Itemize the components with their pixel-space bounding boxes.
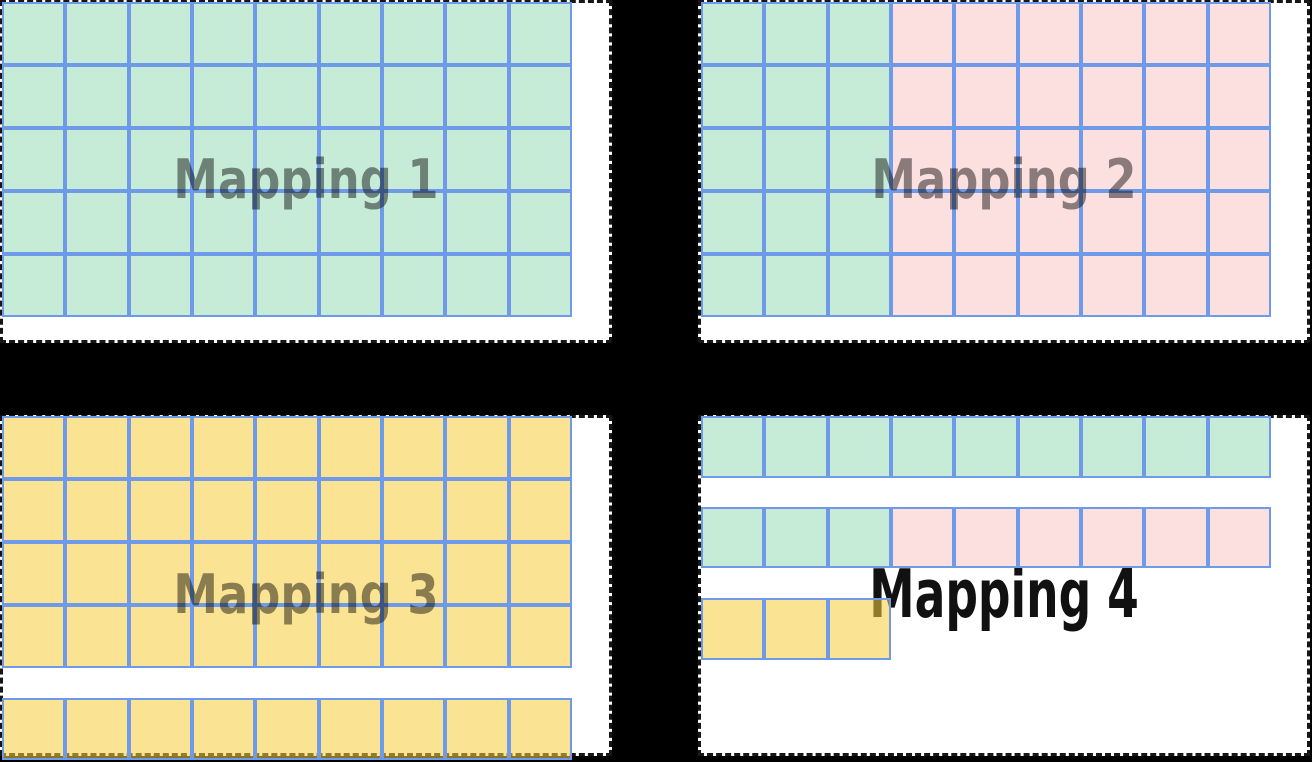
yellow-cell bbox=[2, 416, 65, 479]
mapping-4-row-1 bbox=[701, 416, 1271, 478]
green-cell bbox=[445, 65, 508, 128]
green-cell bbox=[192, 128, 255, 191]
green-cell bbox=[65, 128, 128, 191]
green-cell bbox=[2, 128, 65, 191]
yellow-cell bbox=[319, 542, 382, 605]
green-cell bbox=[509, 65, 572, 128]
yellow-cell bbox=[319, 698, 382, 760]
yellow-cell bbox=[445, 479, 508, 542]
green-cell bbox=[129, 65, 192, 128]
yellow-cell bbox=[319, 416, 382, 479]
yellow-cell bbox=[382, 542, 445, 605]
pink-cell bbox=[1081, 2, 1144, 65]
green-cell bbox=[701, 2, 764, 65]
yellow-cell bbox=[319, 479, 382, 542]
green-cell bbox=[382, 191, 445, 254]
pink-cell bbox=[954, 191, 1017, 254]
green-cell bbox=[1018, 416, 1081, 478]
mapping-1-grid bbox=[2, 2, 572, 317]
yellow-cell bbox=[445, 698, 508, 760]
green-cell bbox=[701, 507, 764, 568]
pink-cell bbox=[1208, 2, 1271, 65]
pink-cell bbox=[1144, 507, 1207, 568]
mapping-3-panel: Mapping 3 bbox=[0, 415, 612, 756]
green-cell bbox=[192, 2, 255, 65]
pink-cell bbox=[1018, 254, 1081, 317]
green-cell bbox=[382, 254, 445, 317]
yellow-cell bbox=[129, 542, 192, 605]
mapping-1-panel: Mapping 1 bbox=[0, 0, 612, 343]
yellow-cell bbox=[255, 542, 318, 605]
yellow-cell bbox=[129, 416, 192, 479]
yellow-cell bbox=[828, 598, 891, 660]
green-cell bbox=[701, 254, 764, 317]
yellow-cell bbox=[65, 479, 128, 542]
pink-cell bbox=[954, 254, 1017, 317]
green-cell bbox=[445, 2, 508, 65]
mapping-3-grid-lower-row bbox=[2, 698, 572, 760]
yellow-cell bbox=[382, 605, 445, 668]
green-cell bbox=[319, 191, 382, 254]
green-cell bbox=[445, 191, 508, 254]
green-cell bbox=[319, 128, 382, 191]
yellow-cell bbox=[2, 698, 65, 760]
pink-cell bbox=[1144, 254, 1207, 317]
green-cell bbox=[509, 191, 572, 254]
pink-cell bbox=[1018, 191, 1081, 254]
green-cell bbox=[192, 191, 255, 254]
yellow-cell bbox=[509, 479, 572, 542]
green-cell bbox=[255, 65, 318, 128]
yellow-cell bbox=[65, 698, 128, 760]
green-cell bbox=[1081, 416, 1144, 478]
green-cell bbox=[828, 191, 891, 254]
pink-cell bbox=[1018, 507, 1081, 568]
pink-cell bbox=[1144, 65, 1207, 128]
green-cell bbox=[1144, 416, 1207, 478]
green-cell bbox=[828, 254, 891, 317]
pink-cell bbox=[1018, 2, 1081, 65]
yellow-cell bbox=[65, 416, 128, 479]
pink-cell bbox=[954, 65, 1017, 128]
pink-cell bbox=[891, 254, 954, 317]
green-cell bbox=[129, 128, 192, 191]
green-cell bbox=[65, 65, 128, 128]
green-cell bbox=[764, 65, 827, 128]
pink-cell bbox=[954, 507, 1017, 568]
pink-cell bbox=[1208, 65, 1271, 128]
green-cell bbox=[764, 191, 827, 254]
pink-cell bbox=[1208, 128, 1271, 191]
pink-cell bbox=[954, 2, 1017, 65]
yellow-cell bbox=[382, 479, 445, 542]
green-cell bbox=[319, 2, 382, 65]
mapping-4-panel: Mapping 4 bbox=[698, 415, 1310, 756]
yellow-cell bbox=[2, 605, 65, 668]
green-cell bbox=[129, 191, 192, 254]
yellow-cell bbox=[382, 698, 445, 760]
yellow-cell bbox=[129, 605, 192, 668]
pink-cell bbox=[1018, 128, 1081, 191]
green-cell bbox=[764, 2, 827, 65]
pink-cell bbox=[1081, 191, 1144, 254]
yellow-cell bbox=[255, 416, 318, 479]
green-cell bbox=[255, 128, 318, 191]
green-cell bbox=[828, 416, 891, 478]
green-cell bbox=[319, 65, 382, 128]
pink-cell bbox=[891, 507, 954, 568]
pink-cell bbox=[891, 2, 954, 65]
yellow-cell bbox=[255, 479, 318, 542]
yellow-cell bbox=[2, 479, 65, 542]
yellow-cell bbox=[129, 698, 192, 760]
green-cell bbox=[2, 2, 65, 65]
mapping-2-panel: Mapping 2 bbox=[698, 0, 1310, 343]
green-cell bbox=[764, 416, 827, 478]
pink-cell bbox=[1208, 254, 1271, 317]
mapping-4-row-2 bbox=[701, 507, 1271, 568]
green-cell bbox=[192, 254, 255, 317]
green-cell bbox=[828, 507, 891, 568]
green-cell bbox=[828, 65, 891, 128]
yellow-cell bbox=[2, 542, 65, 605]
yellow-cell bbox=[701, 598, 764, 660]
green-cell bbox=[701, 65, 764, 128]
yellow-cell bbox=[255, 698, 318, 760]
green-cell bbox=[2, 191, 65, 254]
pink-cell bbox=[1208, 507, 1271, 568]
yellow-cell bbox=[509, 416, 572, 479]
yellow-cell bbox=[192, 416, 255, 479]
yellow-cell bbox=[192, 542, 255, 605]
green-cell bbox=[382, 2, 445, 65]
yellow-cell bbox=[445, 605, 508, 668]
yellow-cell bbox=[319, 605, 382, 668]
mapping-2-grid bbox=[701, 2, 1271, 317]
green-cell bbox=[445, 254, 508, 317]
yellow-cell bbox=[65, 542, 128, 605]
green-cell bbox=[255, 191, 318, 254]
green-cell bbox=[954, 416, 1017, 478]
yellow-cell bbox=[509, 698, 572, 760]
pink-cell bbox=[1081, 128, 1144, 191]
pink-cell bbox=[1081, 65, 1144, 128]
green-cell bbox=[764, 254, 827, 317]
pink-cell bbox=[1018, 65, 1081, 128]
mapping-3-grid-upper bbox=[2, 416, 572, 668]
pink-cell bbox=[1144, 2, 1207, 65]
yellow-cell bbox=[192, 479, 255, 542]
green-cell bbox=[509, 2, 572, 65]
yellow-cell bbox=[445, 542, 508, 605]
green-cell bbox=[764, 128, 827, 191]
yellow-cell bbox=[255, 605, 318, 668]
green-cell bbox=[255, 2, 318, 65]
yellow-cell bbox=[382, 416, 445, 479]
yellow-cell bbox=[192, 605, 255, 668]
yellow-cell bbox=[65, 605, 128, 668]
green-cell bbox=[382, 65, 445, 128]
pink-cell bbox=[954, 128, 1017, 191]
yellow-cell bbox=[445, 416, 508, 479]
green-cell bbox=[129, 254, 192, 317]
green-cell bbox=[701, 128, 764, 191]
green-cell bbox=[445, 128, 508, 191]
green-cell bbox=[828, 128, 891, 191]
green-cell bbox=[65, 191, 128, 254]
memory-mapping-diagram: Mapping 1 Mapping 2 Mapping 3 Mapping 4 bbox=[0, 0, 1312, 761]
yellow-cell bbox=[192, 698, 255, 760]
green-cell bbox=[382, 128, 445, 191]
green-cell bbox=[764, 507, 827, 568]
pink-cell bbox=[1081, 507, 1144, 568]
yellow-cell bbox=[129, 479, 192, 542]
green-cell bbox=[192, 65, 255, 128]
green-cell bbox=[1208, 416, 1271, 478]
green-cell bbox=[319, 254, 382, 317]
pink-cell bbox=[891, 128, 954, 191]
pink-cell bbox=[891, 65, 954, 128]
green-cell bbox=[65, 254, 128, 317]
mapping-4-row-3 bbox=[701, 598, 891, 660]
green-cell bbox=[255, 254, 318, 317]
green-cell bbox=[509, 254, 572, 317]
pink-cell bbox=[1144, 128, 1207, 191]
green-cell bbox=[509, 128, 572, 191]
green-cell bbox=[2, 65, 65, 128]
pink-cell bbox=[1144, 191, 1207, 254]
yellow-cell bbox=[509, 605, 572, 668]
green-cell bbox=[129, 2, 192, 65]
green-cell bbox=[828, 2, 891, 65]
green-cell bbox=[2, 254, 65, 317]
yellow-cell bbox=[509, 542, 572, 605]
pink-cell bbox=[1081, 254, 1144, 317]
green-cell bbox=[65, 2, 128, 65]
green-cell bbox=[701, 416, 764, 478]
yellow-cell bbox=[764, 598, 827, 660]
green-cell bbox=[891, 416, 954, 478]
pink-cell bbox=[1208, 191, 1271, 254]
pink-cell bbox=[891, 191, 954, 254]
green-cell bbox=[701, 191, 764, 254]
